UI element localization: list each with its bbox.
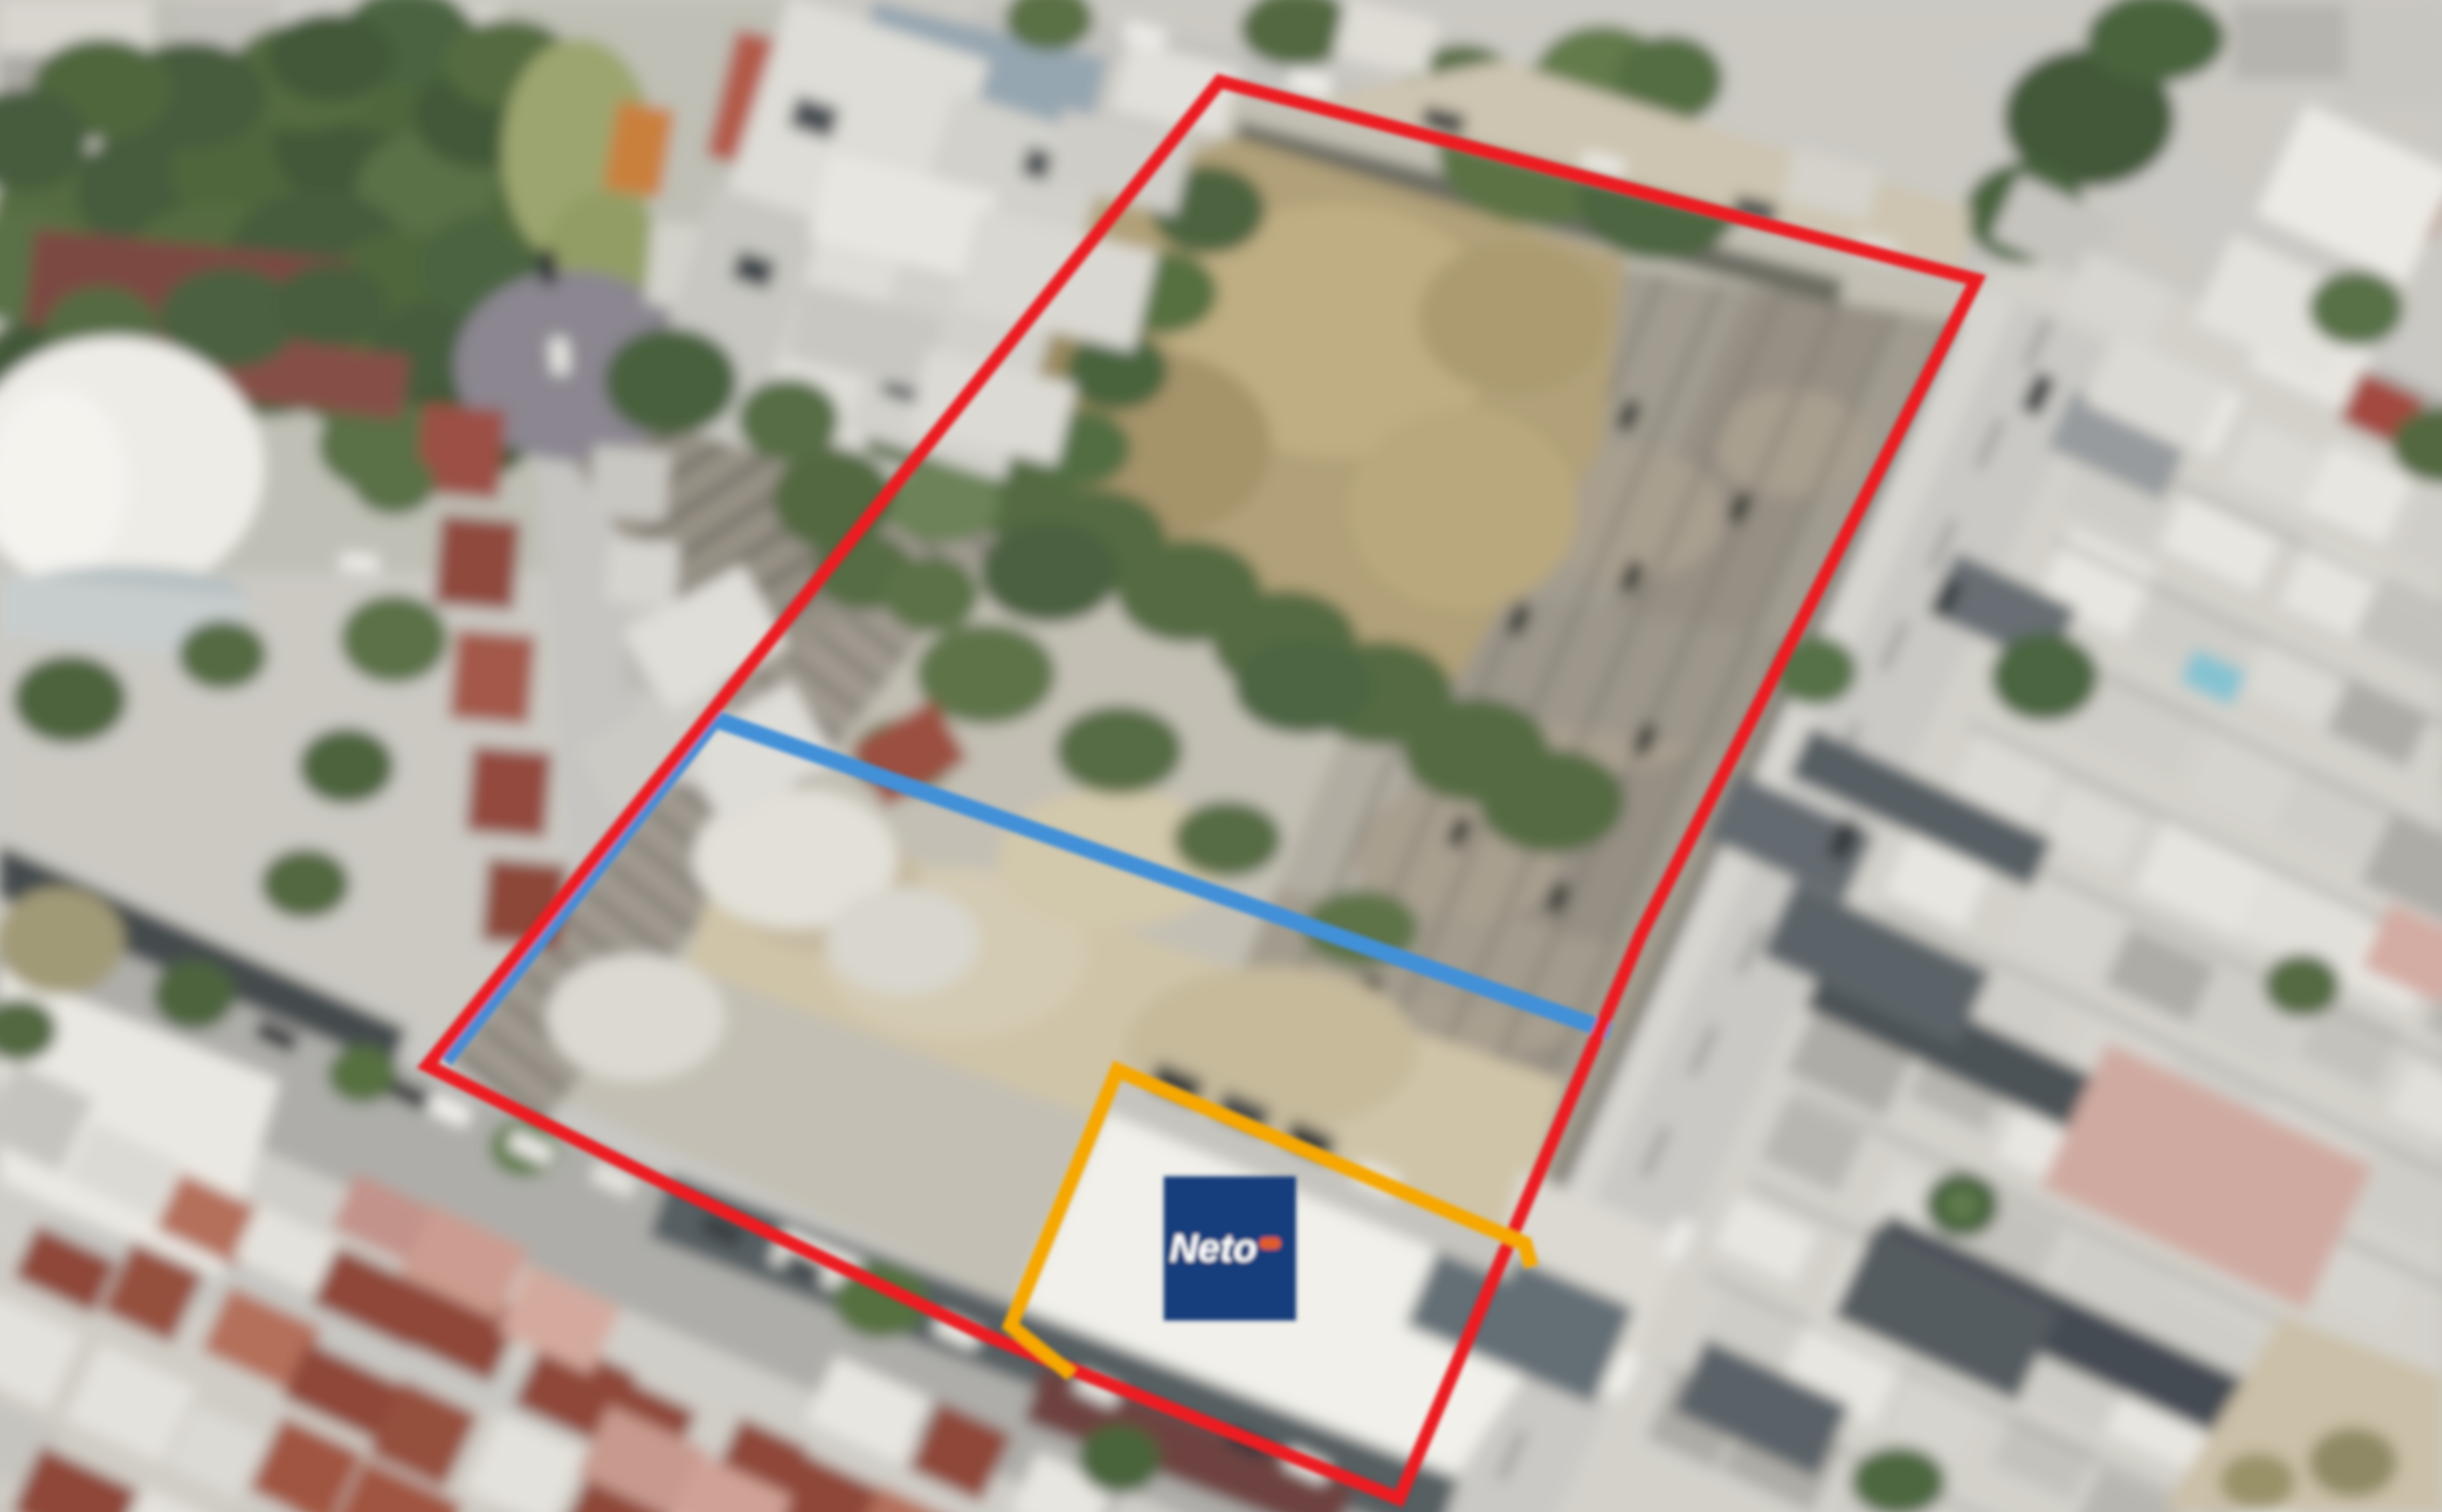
svg-text:Neto: Neto bbox=[1169, 1227, 1257, 1270]
